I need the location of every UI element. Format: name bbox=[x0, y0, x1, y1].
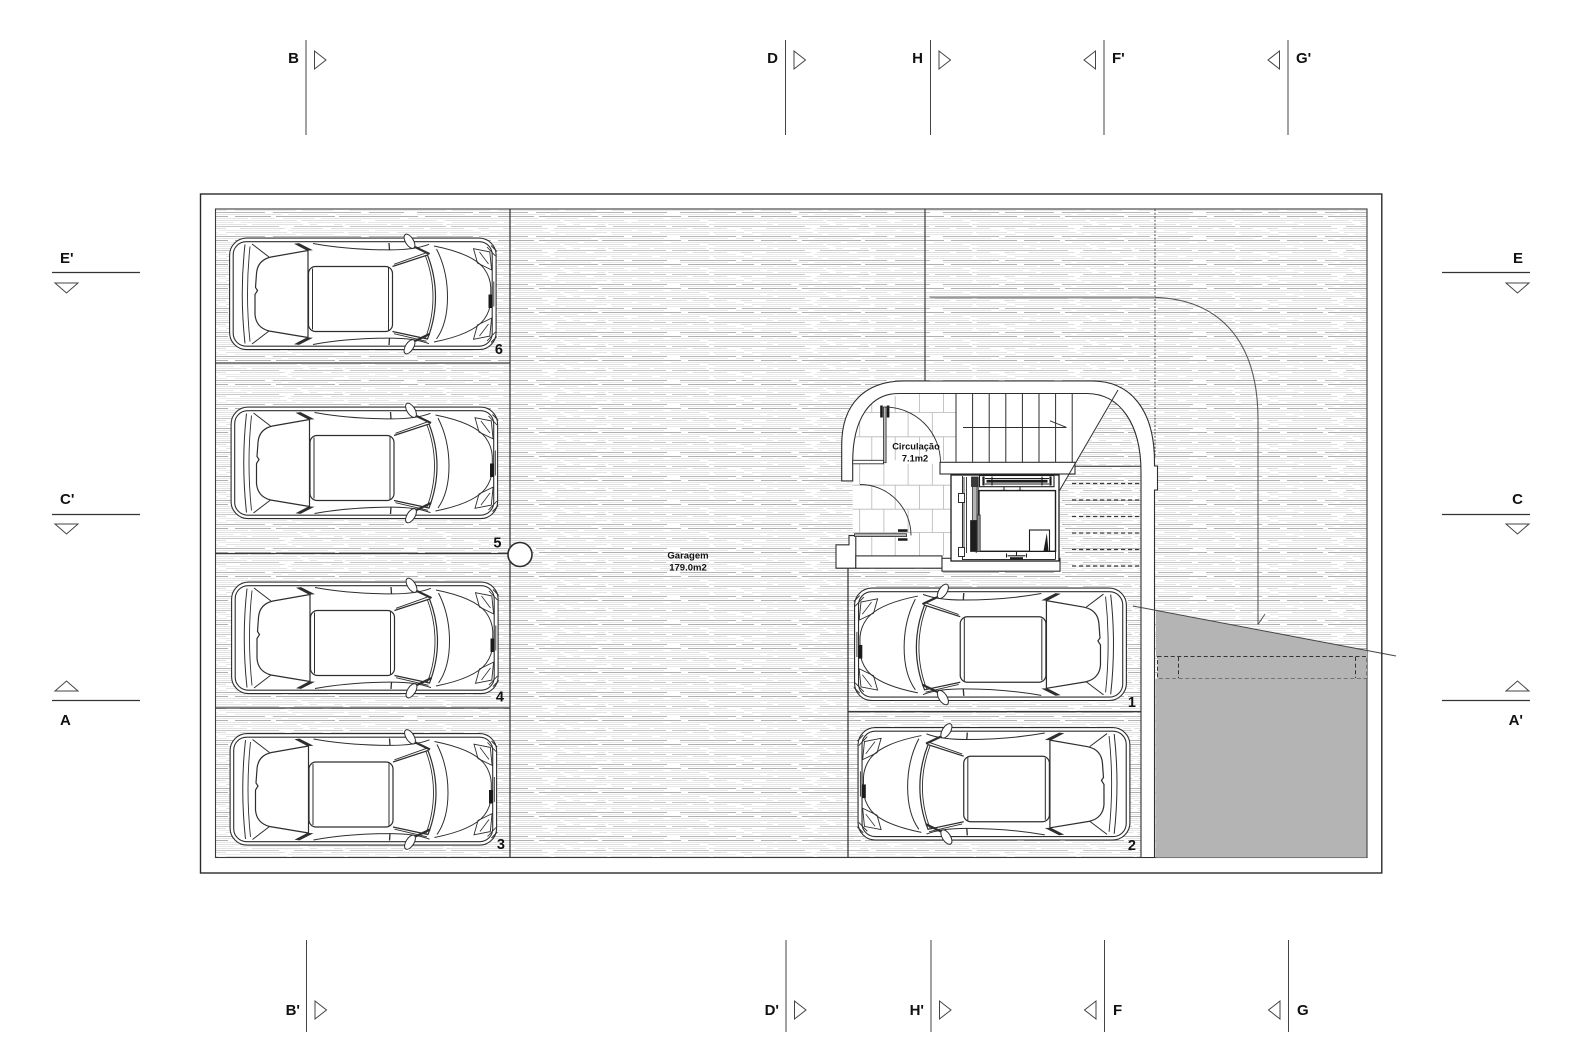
svg-text:4: 4 bbox=[496, 690, 504, 706]
svg-text:2: 2 bbox=[1128, 838, 1136, 854]
svg-text:Garagem: Garagem bbox=[667, 551, 708, 562]
svg-text:H': H' bbox=[910, 1002, 924, 1019]
svg-text:E': E' bbox=[60, 250, 74, 267]
svg-text:H: H bbox=[912, 50, 923, 67]
svg-text:D: D bbox=[767, 50, 778, 67]
svg-text:3: 3 bbox=[497, 837, 505, 853]
svg-text:B': B' bbox=[286, 1002, 300, 1019]
svg-text:D': D' bbox=[765, 1002, 779, 1019]
svg-text:G: G bbox=[1297, 1002, 1309, 1019]
svg-text:A': A' bbox=[1509, 712, 1523, 729]
svg-text:F: F bbox=[1113, 1002, 1122, 1019]
svg-text:6: 6 bbox=[495, 342, 503, 358]
svg-text:E: E bbox=[1513, 250, 1523, 267]
svg-text:G': G' bbox=[1296, 50, 1311, 67]
svg-text:1: 1 bbox=[1128, 695, 1136, 711]
svg-text:F': F' bbox=[1112, 50, 1125, 67]
svg-text:179.0m2: 179.0m2 bbox=[669, 563, 707, 574]
svg-text:5: 5 bbox=[493, 536, 501, 552]
svg-text:A: A bbox=[60, 712, 71, 729]
svg-text:C: C bbox=[1512, 491, 1523, 508]
svg-text:7.1m2: 7.1m2 bbox=[902, 454, 928, 464]
svg-text:Circulação: Circulação bbox=[892, 442, 940, 452]
svg-text:C': C' bbox=[60, 491, 74, 508]
svg-text:B: B bbox=[288, 50, 299, 67]
